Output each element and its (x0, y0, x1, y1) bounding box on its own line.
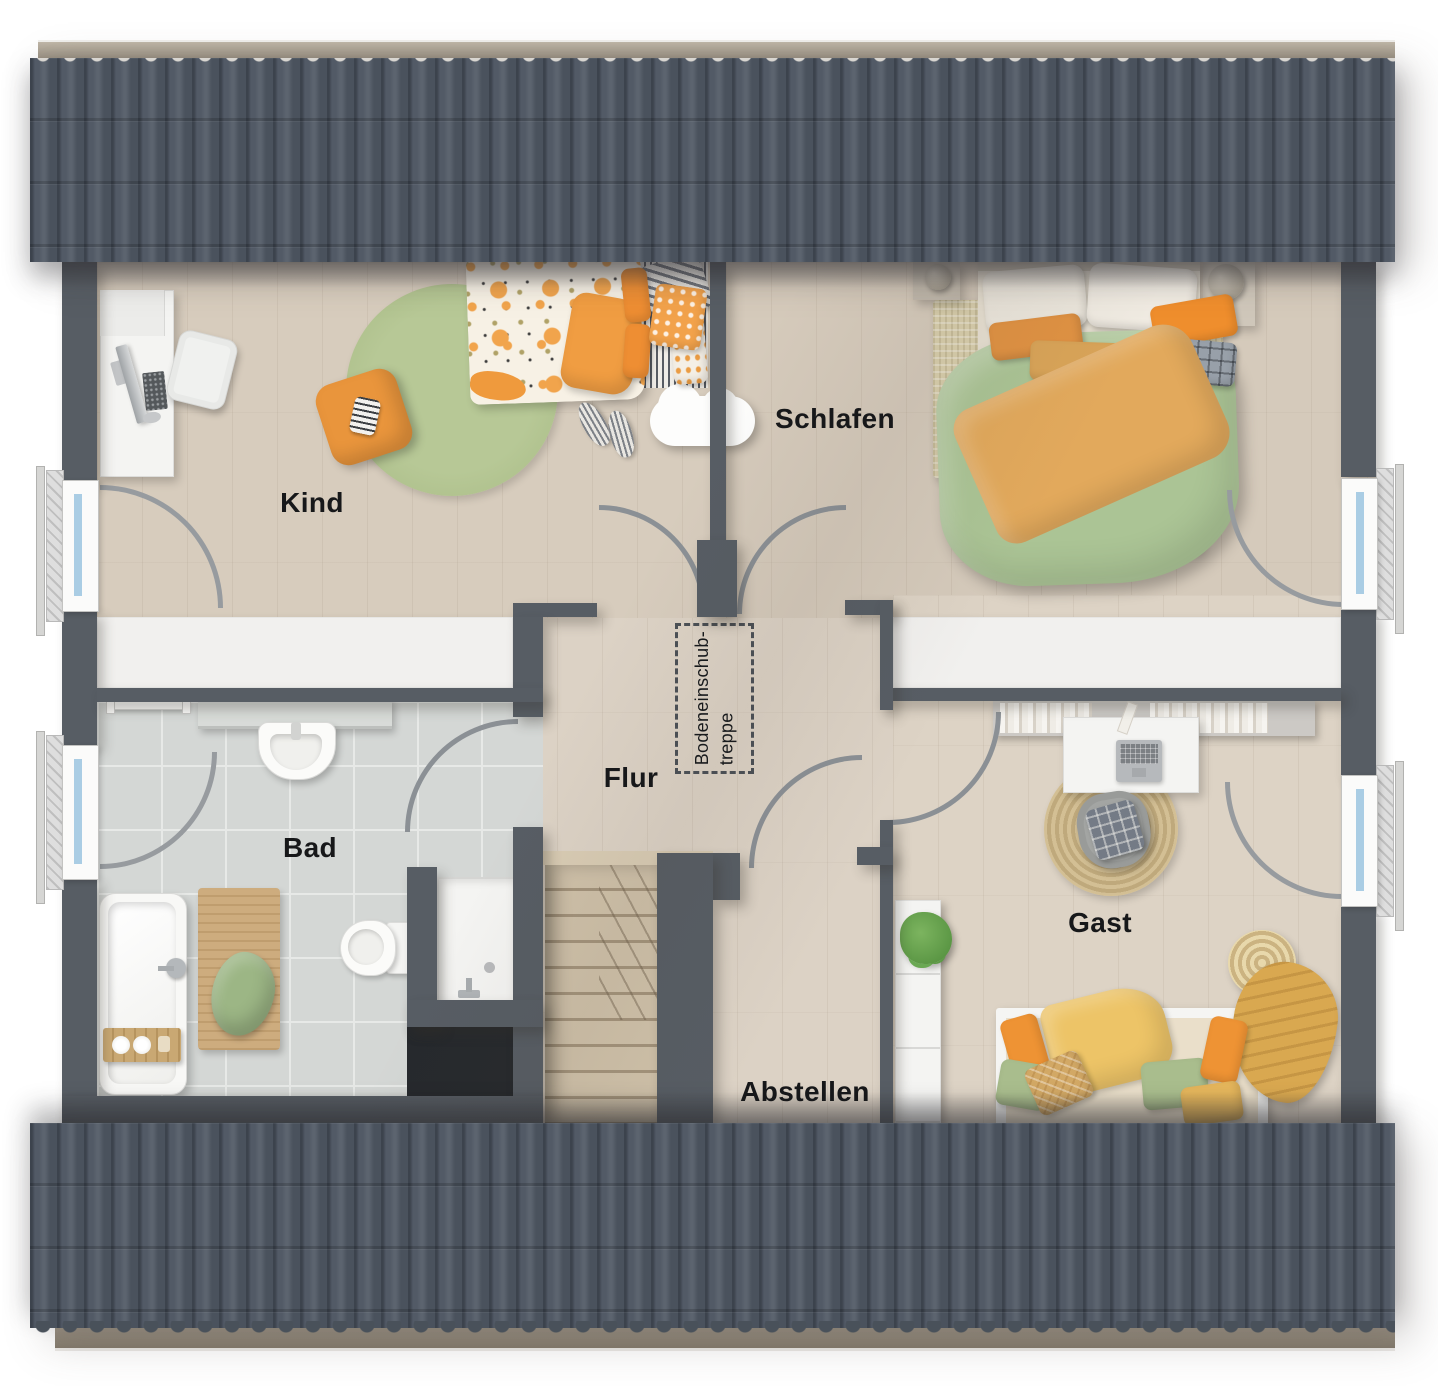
wall-chimney (657, 853, 713, 1123)
faucet (291, 722, 301, 740)
window-rail (1395, 464, 1404, 634)
wall-kind-stub (697, 540, 737, 617)
tub-faucet-arm (158, 966, 174, 971)
toilet-seat (348, 929, 384, 965)
room-label-flur: Flur (604, 764, 658, 792)
window-rail (36, 466, 45, 636)
shower-drain (484, 962, 495, 973)
pillow-kind-dotted (648, 283, 708, 352)
wall-left-top (62, 262, 97, 480)
wall-left-mid (62, 610, 97, 745)
wall-under-knee-right (880, 688, 1341, 701)
soap (158, 1036, 170, 1052)
room-label-schlafen: Schlafen (775, 405, 895, 433)
attic-hatch-text: Bodeneinschub- treppe (690, 631, 739, 765)
attic-hatch-line2: treppe (715, 631, 739, 765)
pillow-kind-orange-small (620, 267, 652, 323)
window-sill (1376, 765, 1394, 917)
wall-shower-bottom (407, 1000, 543, 1027)
window-rail (36, 731, 45, 904)
shower-tray (437, 877, 517, 1007)
room-label-gast: Gast (1068, 909, 1132, 937)
wall-gast-left-bottom (880, 820, 893, 1123)
cloud-table-lobe (658, 384, 702, 428)
wall-abstellen-stub-h (857, 847, 893, 865)
wall-bad-bottom (62, 1096, 543, 1123)
towel-roll (112, 1036, 130, 1054)
staircase (545, 865, 657, 1123)
towel-roll (133, 1036, 151, 1054)
window-rail (1395, 761, 1404, 931)
keyboard (142, 371, 168, 411)
wall-bad-right-bottom (513, 827, 543, 1096)
room-label-abstellen: Abstellen (740, 1078, 870, 1106)
desk-kind-shelf (100, 290, 165, 336)
roof-bottom (30, 1123, 1395, 1328)
laptop-trackpad (1132, 768, 1146, 777)
wall-right-mid (1341, 608, 1376, 775)
wall-kind-bottom (513, 603, 597, 617)
window-kind-glass (74, 494, 82, 596)
roof-top (30, 58, 1395, 262)
lamp-left (925, 264, 951, 290)
knee-wall-right (893, 617, 1341, 688)
wall-abstellen-stub-v (713, 853, 740, 900)
wall-gast-left-top (880, 600, 893, 710)
wall-under-knee-left (97, 688, 543, 702)
wall-right-bottom (1341, 905, 1376, 1123)
plant (900, 912, 952, 964)
attic-hatch-line1: Bodeneinschub- (690, 631, 714, 765)
floor-plan: Bodeneinschub- treppe (0, 0, 1438, 1386)
window-gast-glass (1356, 789, 1364, 891)
pillow-gast-gold (1180, 1080, 1245, 1127)
wall-bad-right-top (513, 617, 543, 717)
wall-left-bottom (62, 878, 97, 1123)
pillow-kind-orange-small (622, 323, 652, 379)
knee-wall-left (97, 617, 513, 688)
laptop-keyboard (1120, 744, 1158, 764)
window-sill (1376, 468, 1394, 620)
shower-faucet-stem (466, 978, 472, 992)
room-label-bad: Bad (283, 834, 337, 862)
wall-right-top (1341, 262, 1376, 477)
attic-hatch-outline: Bodeneinschub- treppe (675, 623, 754, 774)
window-bad-glass (74, 759, 82, 864)
window-schlafen-glass (1356, 492, 1364, 594)
room-label-kind: Kind (280, 489, 344, 517)
